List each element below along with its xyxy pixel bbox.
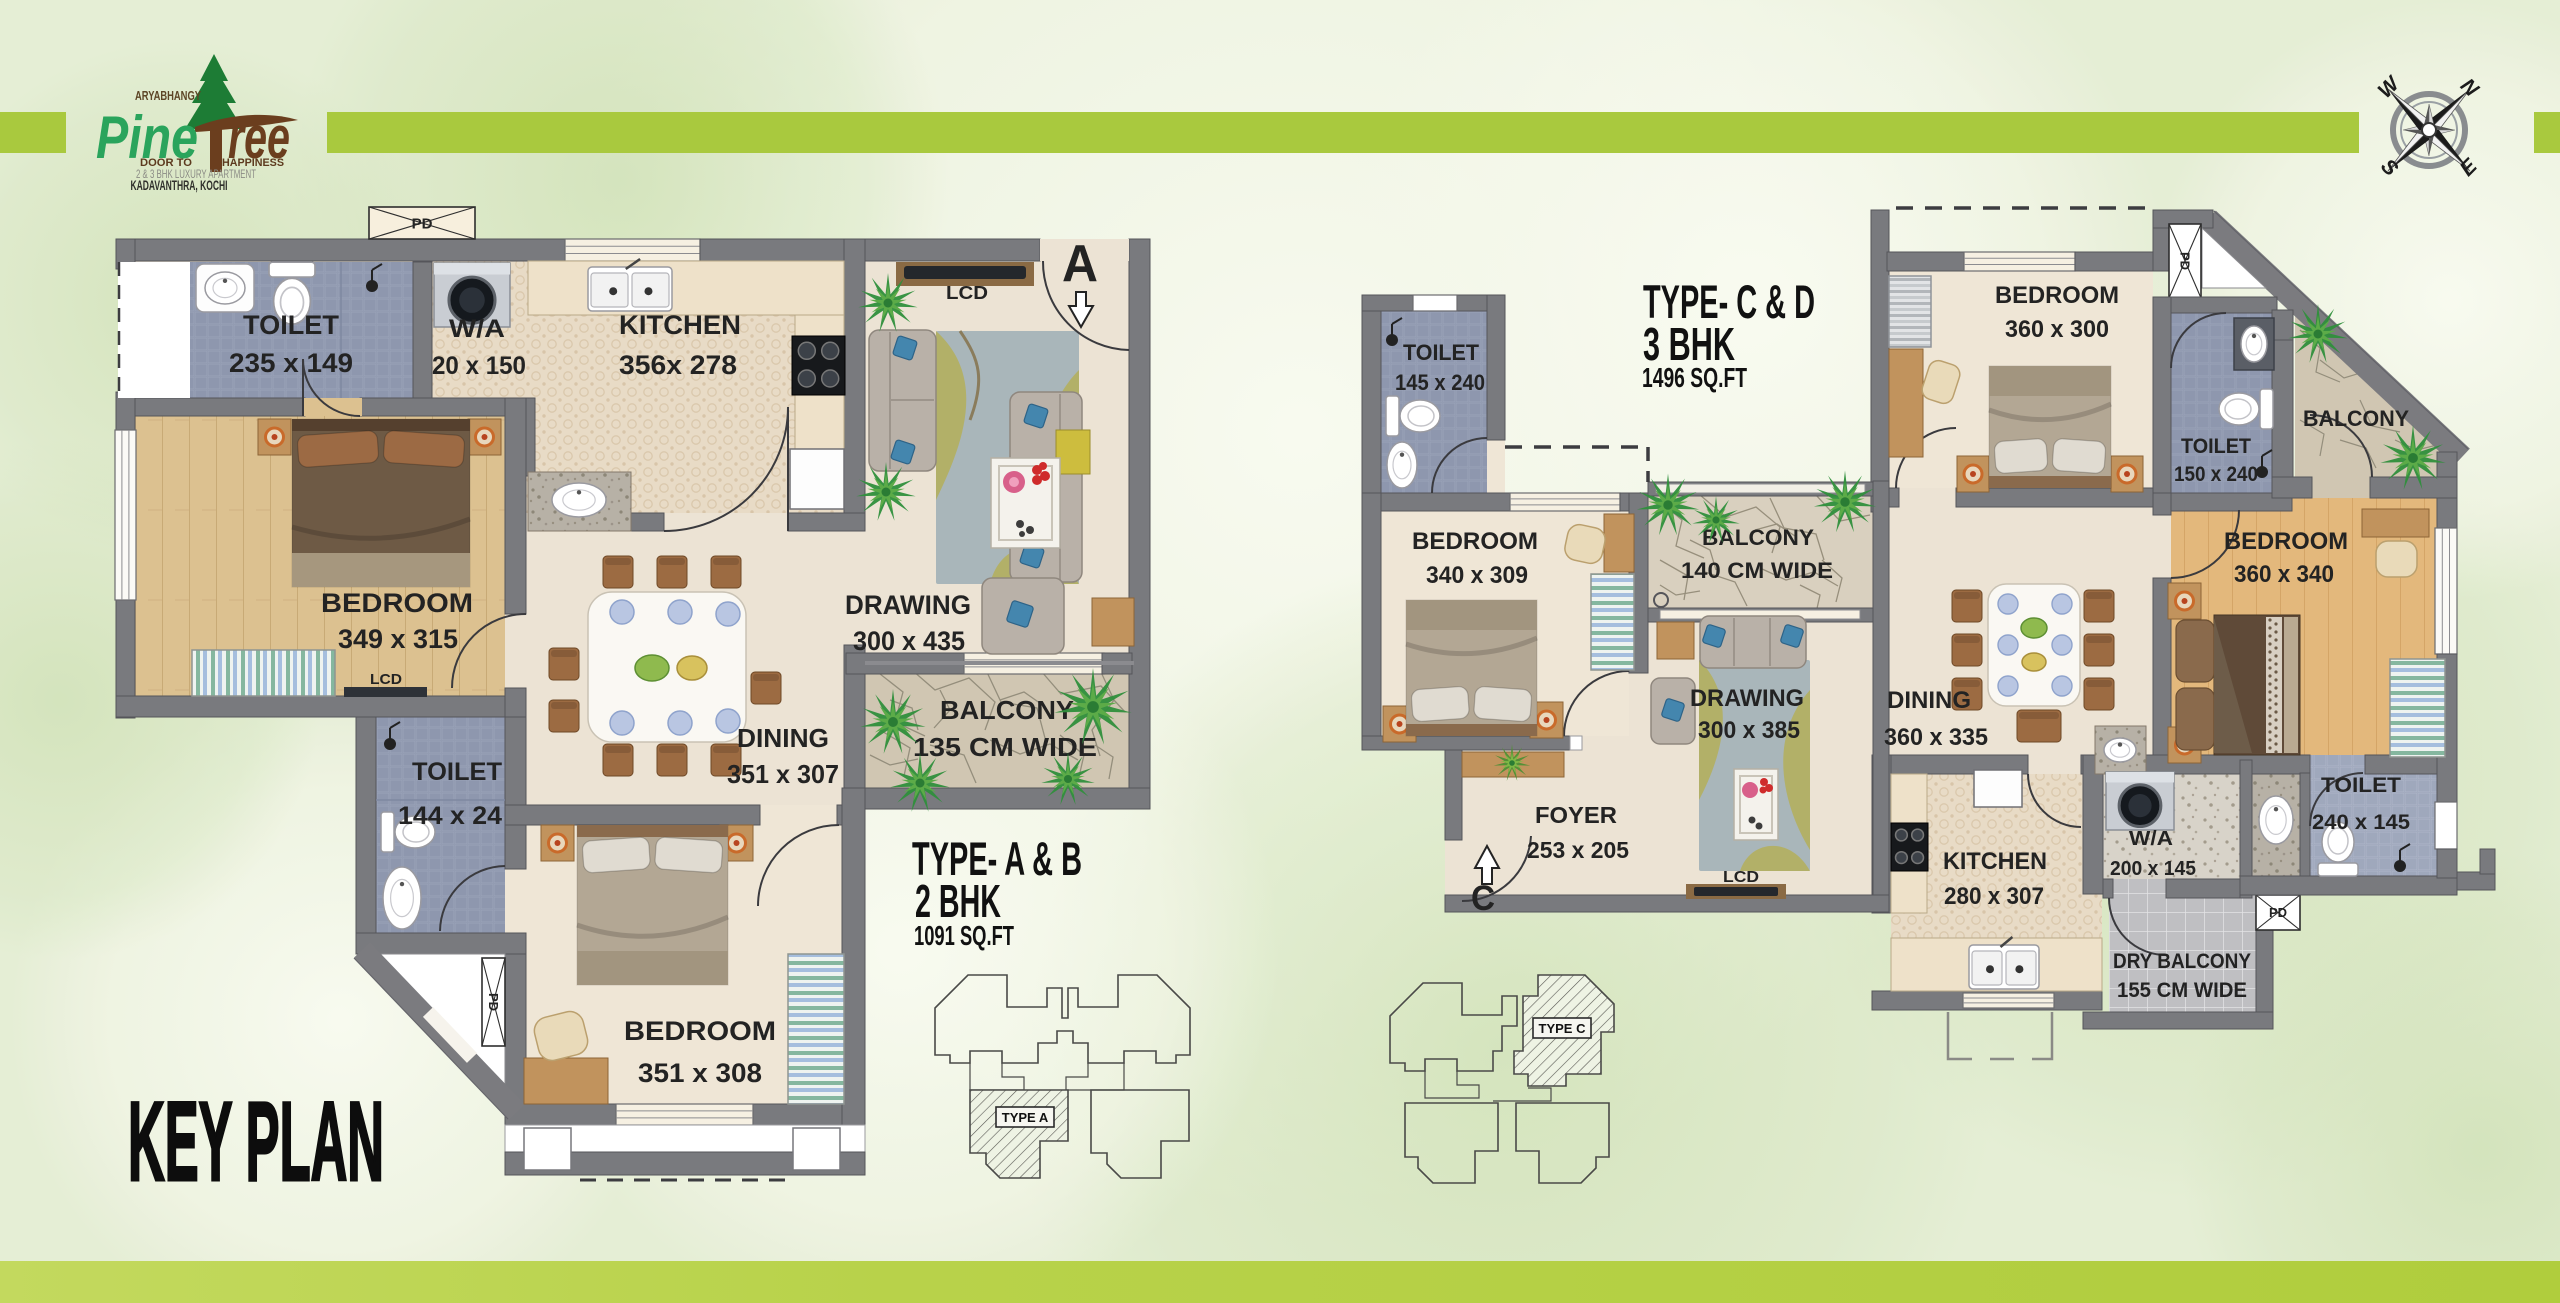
svg-text:KADAVANTHRA, KOCHI: KADAVANTHRA, KOCHI [131,178,228,193]
svg-text:235 x 149: 235 x 149 [229,348,353,378]
svg-text:TOILET: TOILET [2181,435,2251,458]
svg-text:W/A: W/A [2129,828,2173,850]
svg-text:BALCONY: BALCONY [940,695,1074,725]
svg-text:TOILET: TOILET [412,758,502,786]
svg-text:BEDROOM: BEDROOM [321,588,473,618]
svg-text:145 x 240: 145 x 240 [1395,370,1485,395]
svg-text:356x 278: 356x 278 [619,350,737,380]
svg-text:349 x 315: 349 x 315 [338,624,458,654]
svg-text:340 x 309: 340 x 309 [1426,562,1528,589]
svg-text:LCD: LCD [946,283,988,303]
svg-text:155 CM WIDE: 155 CM WIDE [2117,979,2247,1002]
svg-text:BEDROOM: BEDROOM [1995,282,2119,309]
svg-text:PD: PD [412,215,433,232]
svg-text:20 x 150: 20 x 150 [432,352,526,380]
svg-text:253 x 205: 253 x 205 [1527,837,1629,863]
svg-text:PD: PD [2269,905,2287,920]
svg-text:BEDROOM: BEDROOM [624,1016,776,1046]
svg-text:DINING: DINING [737,723,829,753]
svg-text:DRY BALCONY: DRY BALCONY [2113,950,2251,973]
svg-text:351 x 308: 351 x 308 [638,1058,762,1088]
svg-text:360 x 335: 360 x 335 [1884,724,1988,751]
svg-text:280 x 307: 280 x 307 [1944,883,2044,910]
svg-text:200 x 145: 200 x 145 [2110,858,2196,880]
svg-text:DRAWING: DRAWING [845,590,971,620]
svg-text:A: A [1062,235,1098,293]
svg-text:PD: PD [486,993,501,1011]
svg-text:BEDROOM: BEDROOM [1412,528,1538,555]
svg-text:140 CM WIDE: 140 CM WIDE [1681,558,1833,583]
svg-text:360 x 300: 360 x 300 [2005,316,2109,343]
svg-text:TYPE C: TYPE C [1539,1021,1587,1036]
svg-text:FOYER: FOYER [1535,802,1617,828]
svg-text:LCD: LCD [370,671,402,688]
svg-text:KITCHEN: KITCHEN [619,310,741,340]
svg-text:150 x 240: 150 x 240 [2174,463,2258,486]
svg-text:240 x 145: 240 x 145 [2312,811,2410,834]
svg-text:144 x 24: 144 x 24 [398,802,502,830]
svg-text:300 x 385: 300 x 385 [1698,717,1800,744]
svg-text:DINING: DINING [1887,687,1971,714]
svg-text:1091 SQ.FT: 1091 SQ.FT [914,920,1014,951]
svg-text:ARYABHANGY: ARYABHANGY [135,88,201,103]
svg-text:1496 SQ.FT: 1496 SQ.FT [1642,362,1747,393]
svg-text:KEY PLAN: KEY PLAN [128,1079,384,1204]
svg-text:300 x 435: 300 x 435 [853,626,965,656]
svg-text:135 CM WIDE: 135 CM WIDE [913,732,1097,762]
svg-text:BEDROOM: BEDROOM [2224,528,2348,555]
svg-text:PD: PD [2177,252,2192,270]
svg-text:W/A: W/A [449,315,505,343]
svg-text:LCD: LCD [1723,869,1759,886]
svg-text:TOILET: TOILET [2321,774,2401,797]
svg-text:TYPE A: TYPE A [1002,1110,1049,1125]
svg-text:BALCONY: BALCONY [2303,406,2409,431]
svg-text:DRAWING: DRAWING [1690,685,1804,712]
svg-text:KITCHEN: KITCHEN [1943,848,2047,875]
svg-text:TOILET: TOILET [1403,340,1480,365]
svg-text:TOILET: TOILET [243,310,339,340]
svg-text:351 x 307: 351 x 307 [727,759,839,789]
svg-text:360 x 340: 360 x 340 [2234,561,2334,588]
